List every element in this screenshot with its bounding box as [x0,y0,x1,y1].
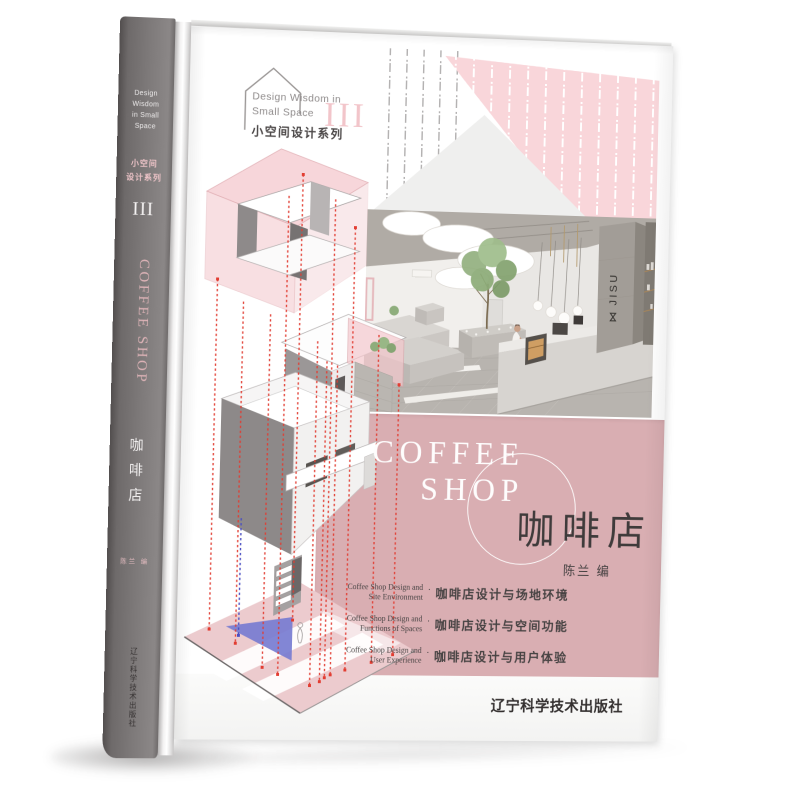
concrete-column [596,221,645,355]
topic-1-separator: · [423,584,436,595]
topic-2-cn: 咖啡店设计与空间功能 [435,615,569,635]
pos-screen [573,316,583,325]
spine-title-cn: 咖啡店 [126,414,147,534]
upper-volume [204,146,369,314]
spine-publisher: 辽宁科学技术出版社 [123,617,140,757]
topic-3-en-line2: User Experience [319,655,422,665]
series-volume-numeral: III [324,95,368,136]
cover-title-cn: 咖啡店 [516,498,653,557]
book: Design Wisdom in Small Space 小空间 设计系列 II… [102,16,675,766]
topic-2-separator: · [422,616,435,627]
topic-2-en-line2: Functions of Spaces [320,623,423,634]
topic-1-en-line2: Site Environment [320,591,423,602]
espresso-machine [552,323,567,335]
spine-title-en: COFFEE SHOP [128,227,152,417]
topic-3-cn: 咖啡店设计与用户体验 [434,646,568,666]
cover-title-en: COFFEE SHOP [346,434,525,510]
cover-publisher: 辽宁科学技术出版社 [466,695,623,717]
jisu-sign: ⋈JISU [608,272,621,322]
front-cover: Design Wisdom in Small Space 小空间设计系列 III [174,26,673,741]
topic-3-separator: · [421,647,434,658]
cover-author: 陈兰 编 [563,560,611,579]
series-logo-line2: Small Space [252,105,314,119]
spine-series-title-cn: 小空间 设计系列 [116,156,172,185]
topic-row-2: Coffee Shop Design and Functions of Spac… [320,613,645,635]
topic-row-1: Coffee Shop Design and Site Environment … [320,582,645,605]
product-photo-stage: Design Wisdom in Small Space 小空间 设计系列 II… [0,0,800,800]
spine-author: 陈兰 编 [107,555,163,566]
topic-row-3: Coffee Shop Design and User Experience ·… [319,645,644,667]
spine-volume-numeral: III [115,198,171,222]
topic-1-cn: 咖啡店设计与场地环境 [435,583,569,603]
spine-series-title: Design Wisdom in Small Space [117,88,173,133]
